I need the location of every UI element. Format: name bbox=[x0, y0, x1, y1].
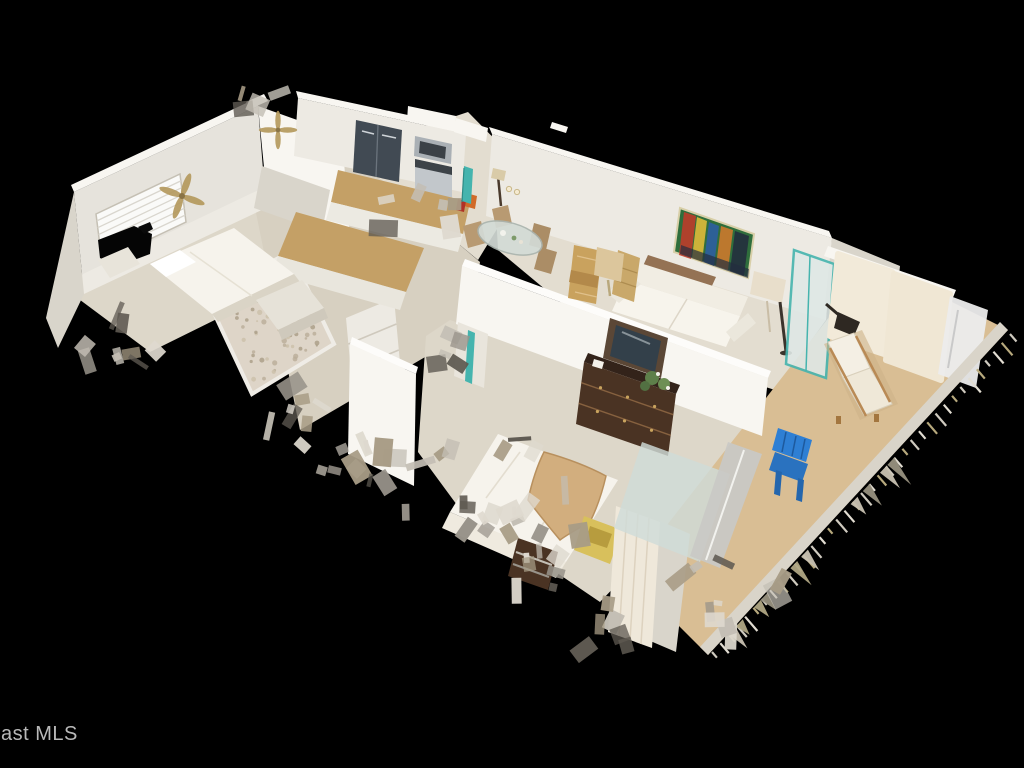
sliding-glass-door bbox=[786, 250, 834, 378]
watermark: ast MLS bbox=[1, 723, 78, 746]
dollhouse-3d-view bbox=[0, 0, 1024, 768]
roof-fragment bbox=[550, 122, 568, 133]
refrigerator bbox=[353, 120, 402, 182]
mls-listing-photo: ast MLS bbox=[0, 0, 1024, 768]
